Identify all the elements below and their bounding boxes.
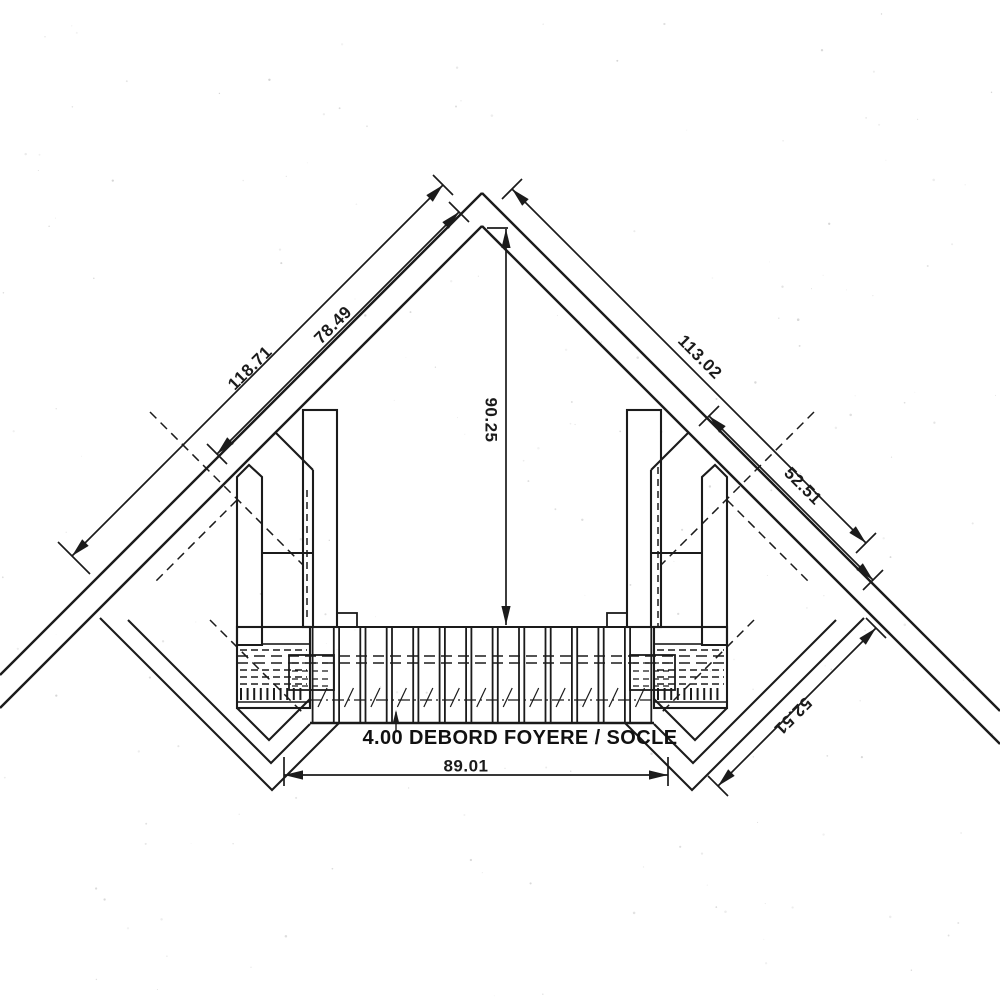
dimension-hearth-width: 89.01 xyxy=(284,757,668,787)
left-splay xyxy=(275,432,313,470)
right-step xyxy=(607,613,627,627)
right-wall-inner-line xyxy=(482,226,1000,744)
dim-label-hearth-width: 89.01 xyxy=(443,757,488,776)
hearth-slats xyxy=(240,627,724,723)
left-hatch-band xyxy=(262,627,310,644)
dim-label-hearth-side: 52.51 xyxy=(770,693,815,738)
dimension-center-vertical: 90.25 xyxy=(482,228,511,625)
corner-fireplace-plan: 118.71 78.49 113.02 52.51 xyxy=(0,0,1000,1000)
inner-plate-courses xyxy=(292,663,672,686)
left-step xyxy=(337,613,357,627)
inner-plates xyxy=(289,655,675,690)
right-hatch-band xyxy=(654,627,702,644)
left-masonry-strip xyxy=(237,465,262,645)
dim-label-right-outer: 113.02 xyxy=(674,331,726,383)
annotation-debord-foyere-socle: 4.00 DEBORD FOYERE / SOCLE xyxy=(363,727,678,749)
right-jamb xyxy=(627,410,661,627)
dim-label-right-upper: 52.51 xyxy=(780,463,825,508)
right-masonry-strip xyxy=(702,465,727,645)
left-wall-outer-line xyxy=(0,193,482,675)
right-splay xyxy=(651,432,689,470)
corner-walls xyxy=(0,193,1000,744)
scan-noise xyxy=(2,13,996,996)
left-wall-inner-line xyxy=(0,226,482,708)
dimension-hearth-side: 52.51 xyxy=(708,618,886,796)
scanned-technical-drawing: 118.71 78.49 113.02 52.51 xyxy=(0,0,1000,1000)
dimension-left-outer: 118.71 xyxy=(58,175,453,574)
dim-label-center-vertical: 90.25 xyxy=(482,397,501,442)
left-jamb xyxy=(303,410,337,627)
dim-label-left-outer: 118.71 xyxy=(224,342,276,394)
